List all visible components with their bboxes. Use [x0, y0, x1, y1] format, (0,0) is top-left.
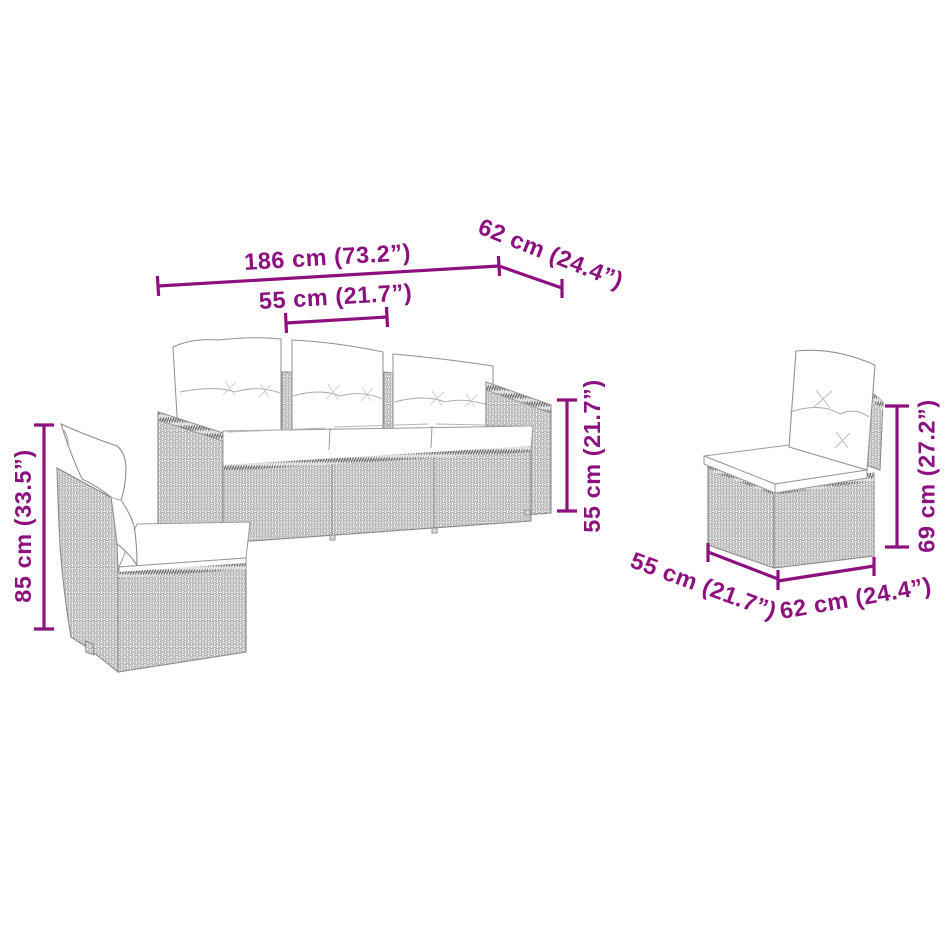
svg-text:69 cm (27.2”): 69 cm (27.2”) [914, 399, 940, 552]
svg-text:55 cm (21.7”): 55 cm (21.7”) [579, 379, 605, 532]
svg-text:85 cm (33.5”): 85 cm (33.5”) [10, 449, 36, 602]
